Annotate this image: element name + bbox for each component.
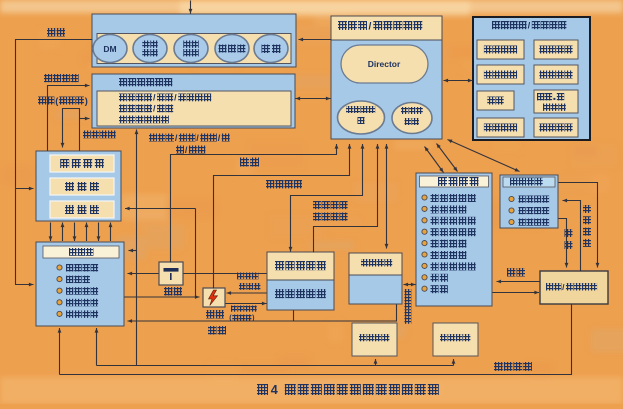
svg-text:/: / <box>368 21 371 32</box>
svg-text:/: / <box>185 145 188 155</box>
svg-text:/: / <box>175 133 178 143</box>
svg-text:): ) <box>85 96 88 106</box>
svg-text:Director: Director <box>368 59 401 69</box>
svg-text:/: / <box>528 20 531 31</box>
svg-text:/: / <box>196 133 199 143</box>
svg-text:/: / <box>218 133 221 143</box>
svg-text:DM: DM <box>103 44 116 54</box>
svg-text:4: 4 <box>271 383 278 397</box>
